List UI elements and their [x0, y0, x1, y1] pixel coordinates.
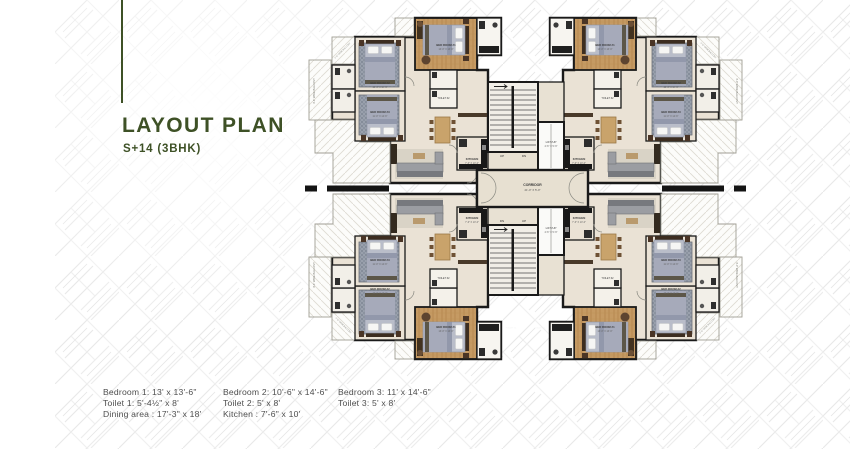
plan-label-balcony: 4'-0" WIDE BALCONY — [312, 78, 316, 104]
plan-label-bedroom2: BED ROOM #2 — [661, 287, 681, 291]
plan-label-kitchen_dim: 7'-6" X 10'-0" — [572, 221, 586, 224]
plan-label-bedroom2: BED ROOM #2 — [370, 81, 390, 85]
plan-label-bedroom2: BED ROOM #2 — [370, 287, 390, 291]
plan-label-corridor_dim: 21'-0" X 5'-0" — [524, 188, 540, 192]
legend-line: Dining area : 17'-3" x 18' — [103, 409, 201, 420]
plan-label-up: UP — [522, 219, 526, 223]
plan-label-kitchen_dim: 7'-6" X 10'-0" — [465, 162, 479, 165]
plan-label-bedroom1: BED ROOM #1 — [595, 43, 615, 47]
plan-label-toilet: TOILET #2 — [601, 277, 614, 280]
plan-label-balcony: 4'-0" WIDE BALCONY — [735, 262, 739, 288]
page-subtitle: S+14 (3BHK) — [123, 143, 201, 155]
plan-label-bedroom3: BED ROOM #3 — [370, 258, 390, 262]
plan-label-ensuite: TOILET #1 — [535, 328, 546, 330]
page-title: LAYOUT PLAN — [122, 114, 285, 138]
plan-label-kitchen_dim: 7'-6" X 10'-0" — [465, 221, 479, 224]
plan-label-up: UP — [500, 154, 504, 158]
plan-label-bedroom2_dim: 10'-6" X 14'-6" — [663, 86, 678, 89]
plan-label-bedroom1_dim: 13'-0" X 13'-6" — [597, 48, 612, 51]
legend-column-3: Bedroom 3: 11' x 14'-6" Toilet 3: 5' x 8… — [338, 387, 431, 409]
plan-label-bedroom3: BED ROOM #3 — [661, 258, 681, 262]
plan-label-balcony: 4'-0" WIDE BALCONY — [312, 262, 316, 288]
plan-label-lift_dim: 4'-6" X 5'-6" — [544, 231, 557, 234]
legend-column-1: Bedroom 1: 13' x 13'-6" Toilet 1: 5'-4½"… — [103, 387, 201, 421]
plan-label-kitchen: KITCHEN — [573, 216, 585, 220]
plan-label-toilet: TOILET #2 — [601, 97, 614, 100]
plan-label-bedroom1_dim: 13'-0" X 13'-6" — [597, 330, 612, 333]
legend-line: Bedroom 2: 10'-6" x 14'-6" — [223, 387, 328, 398]
plan-label-balcony: 4'-0" WIDE BALCONY — [735, 78, 739, 104]
plan-label-bedroom1: BED ROOM #1 — [436, 325, 456, 329]
staircase-top — [488, 82, 538, 152]
legend-line: Kitchen : 7'-6" x 10' — [223, 409, 328, 420]
plan-label-kitchen: KITCHEN — [466, 157, 478, 161]
plan-label-ensuite: TOILET #1 — [506, 49, 517, 51]
plan-label-bedroom2_dim: 10'-6" X 14'-6" — [663, 292, 678, 295]
stair-landing-bottom — [488, 207, 538, 225]
plan-label-bedroom3: BED ROOM #3 — [370, 110, 390, 114]
plan-label-bedroom1: BED ROOM #1 — [436, 43, 456, 47]
accent-vertical-line — [121, 0, 123, 103]
staircase-bottom — [488, 225, 538, 295]
plan-label-bedroom2_dim: 10'-6" X 14'-6" — [372, 292, 387, 295]
plan-label-bedroom2_dim: 10'-6" X 14'-6" — [372, 86, 387, 89]
plan-label-bedroom3: BED ROOM #3 — [661, 110, 681, 114]
plan-label-ensuite: TOILET #1 — [535, 49, 546, 51]
plan-label-bedroom3_dim: 11'-0" X 14'-6" — [373, 115, 388, 118]
plan-label-dn: DN — [522, 154, 526, 158]
plan-label-bedroom1: BED ROOM #1 — [595, 325, 615, 329]
plan-label-lift: LIFT/UP — [546, 140, 557, 144]
plan-label-kitchen: KITCHEN — [466, 216, 478, 220]
plan-label-bedroom3_dim: 11'-0" X 14'-6" — [373, 263, 388, 266]
plan-label-bedroom1_dim: 13'-0" X 13'-6" — [438, 330, 453, 333]
plan-label-kitchen_dim: 7'-6" X 10'-0" — [572, 162, 586, 165]
page: LAYOUT PLAN S+14 (3BHK) — [0, 0, 850, 449]
plan-label-corridor: CORRIDOR — [523, 183, 542, 187]
floor-plan: CORRIDOR21'-0" X 5'-0"LIFT/UP4'-6" X 5'-… — [305, 13, 746, 364]
plan-label-bedroom2: BED ROOM #2 — [661, 81, 681, 85]
plan-label-bedroom3_dim: 11'-0" X 14'-6" — [664, 263, 679, 266]
plan-label-toilet: TOILET #2 — [437, 97, 450, 100]
plan-label-ensuite: TOILET #1 — [506, 328, 517, 330]
legend-line: Toilet 3: 5' x 8' — [338, 398, 431, 409]
legend-line: Bedroom 3: 11' x 14'-6" — [338, 387, 431, 398]
plan-label-lift: LIFT/UP — [546, 226, 557, 230]
plan-label-toilet: TOILET #2 — [437, 277, 450, 280]
legend-column-2: Bedroom 2: 10'-6" x 14'-6" Toilet 2: 5' … — [223, 387, 328, 421]
plan-label-kitchen: KITCHEN — [573, 157, 585, 161]
plan-label-lift_dim: 4'-6" X 5'-6" — [544, 145, 557, 148]
plan-label-bedroom1_dim: 13'-0" X 13'-6" — [438, 48, 453, 51]
legend-line: Toilet 1: 5'-4½" x 8' — [103, 398, 201, 409]
plan-label-bedroom3_dim: 11'-0" X 14'-6" — [664, 115, 679, 118]
legend-line: Toilet 2: 5' x 8' — [223, 398, 328, 409]
legend-line: Bedroom 1: 13' x 13'-6" — [103, 387, 201, 398]
plan-label-dn: DN — [500, 219, 504, 223]
stair-landing-top — [488, 152, 538, 170]
